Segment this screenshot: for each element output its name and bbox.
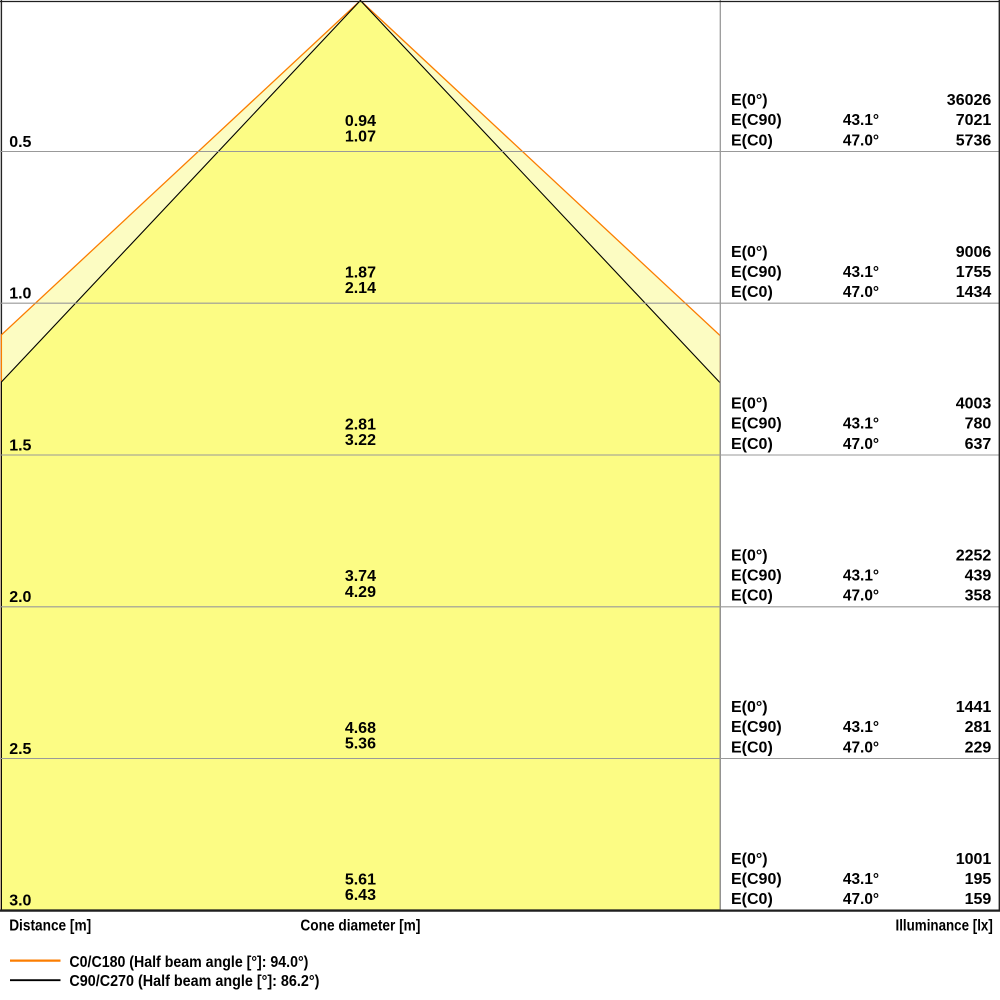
svg-text:Illuminance [lx]: Illuminance [lx] xyxy=(896,917,993,934)
svg-text:4003: 4003 xyxy=(956,396,992,413)
svg-text:E(C0): E(C0) xyxy=(731,588,773,605)
svg-text:1441: 1441 xyxy=(956,699,992,716)
svg-text:1.07: 1.07 xyxy=(345,129,376,146)
svg-text:5736: 5736 xyxy=(956,132,992,149)
svg-text:4.29: 4.29 xyxy=(345,584,376,601)
svg-text:47.0°: 47.0° xyxy=(843,739,879,756)
svg-text:2.0: 2.0 xyxy=(9,589,31,606)
svg-text:2.5: 2.5 xyxy=(9,741,31,758)
svg-text:9006: 9006 xyxy=(956,244,992,261)
svg-text:1001: 1001 xyxy=(956,851,992,868)
svg-text:E(C90): E(C90) xyxy=(731,719,782,736)
svg-text:E(C90): E(C90) xyxy=(731,871,782,888)
svg-text:637: 637 xyxy=(965,436,992,453)
svg-text:43.1°: 43.1° xyxy=(843,719,879,736)
svg-text:E(C0): E(C0) xyxy=(731,891,773,908)
svg-text:E(0°): E(0°) xyxy=(731,699,768,716)
svg-text:E(C0): E(C0) xyxy=(731,436,773,453)
svg-text:43.1°: 43.1° xyxy=(843,568,879,585)
svg-text:47.0°: 47.0° xyxy=(843,132,879,149)
svg-text:43.1°: 43.1° xyxy=(843,112,879,129)
svg-text:E(0°): E(0°) xyxy=(731,92,768,109)
svg-text:229: 229 xyxy=(965,739,992,756)
svg-text:Distance [m]: Distance [m] xyxy=(9,917,91,934)
svg-text:47.0°: 47.0° xyxy=(843,284,879,301)
svg-text:0.5: 0.5 xyxy=(9,134,31,151)
svg-text:4.68: 4.68 xyxy=(345,720,376,737)
svg-text:780: 780 xyxy=(965,416,992,433)
svg-text:1.87: 1.87 xyxy=(345,265,376,282)
svg-text:Cone diameter [m]: Cone diameter [m] xyxy=(300,917,420,934)
svg-text:E(0°): E(0°) xyxy=(731,547,768,564)
svg-text:43.1°: 43.1° xyxy=(843,416,879,433)
svg-text:3.22: 3.22 xyxy=(345,432,376,449)
svg-text:3.74: 3.74 xyxy=(345,568,376,585)
svg-text:5.61: 5.61 xyxy=(345,872,376,889)
svg-text:43.1°: 43.1° xyxy=(843,264,879,281)
svg-text:E(C90): E(C90) xyxy=(731,416,782,433)
svg-text:0.94: 0.94 xyxy=(345,113,376,130)
svg-text:47.0°: 47.0° xyxy=(843,436,879,453)
svg-text:E(0°): E(0°) xyxy=(731,851,768,868)
svg-text:159: 159 xyxy=(965,891,992,908)
svg-text:E(C90): E(C90) xyxy=(731,568,782,585)
svg-text:358: 358 xyxy=(965,588,992,605)
svg-text:47.0°: 47.0° xyxy=(843,891,879,908)
svg-text:C90/C270 (Half beam angle [°]:: C90/C270 (Half beam angle [°]: 86.2°) xyxy=(69,973,319,990)
svg-text:C0/C180 (Half beam angle [°]:: C0/C180 (Half beam angle [°]: 94.0°) xyxy=(69,954,308,971)
svg-text:1755: 1755 xyxy=(956,264,992,281)
svg-text:E(0°): E(0°) xyxy=(731,396,768,413)
svg-text:36026: 36026 xyxy=(947,92,992,109)
svg-text:E(0°): E(0°) xyxy=(731,244,768,261)
svg-text:43.1°: 43.1° xyxy=(843,871,879,888)
svg-text:E(C90): E(C90) xyxy=(731,264,782,281)
svg-text:E(C0): E(C0) xyxy=(731,132,773,149)
svg-text:47.0°: 47.0° xyxy=(843,588,879,605)
svg-text:281: 281 xyxy=(965,719,992,736)
svg-text:E(C90): E(C90) xyxy=(731,112,782,129)
svg-text:439: 439 xyxy=(965,568,992,585)
svg-text:2.14: 2.14 xyxy=(345,280,376,297)
svg-text:195: 195 xyxy=(965,871,992,888)
svg-text:1.0: 1.0 xyxy=(9,286,31,303)
svg-text:1.5: 1.5 xyxy=(9,437,31,454)
svg-text:6.43: 6.43 xyxy=(345,887,376,904)
svg-text:7021: 7021 xyxy=(956,112,992,129)
svg-text:1434: 1434 xyxy=(956,284,992,301)
svg-text:3.0: 3.0 xyxy=(9,893,31,910)
svg-text:E(C0): E(C0) xyxy=(731,739,773,756)
svg-text:5.36: 5.36 xyxy=(345,736,376,753)
svg-text:2.81: 2.81 xyxy=(345,416,376,433)
svg-text:2252: 2252 xyxy=(956,547,992,564)
svg-text:E(C0): E(C0) xyxy=(731,284,773,301)
